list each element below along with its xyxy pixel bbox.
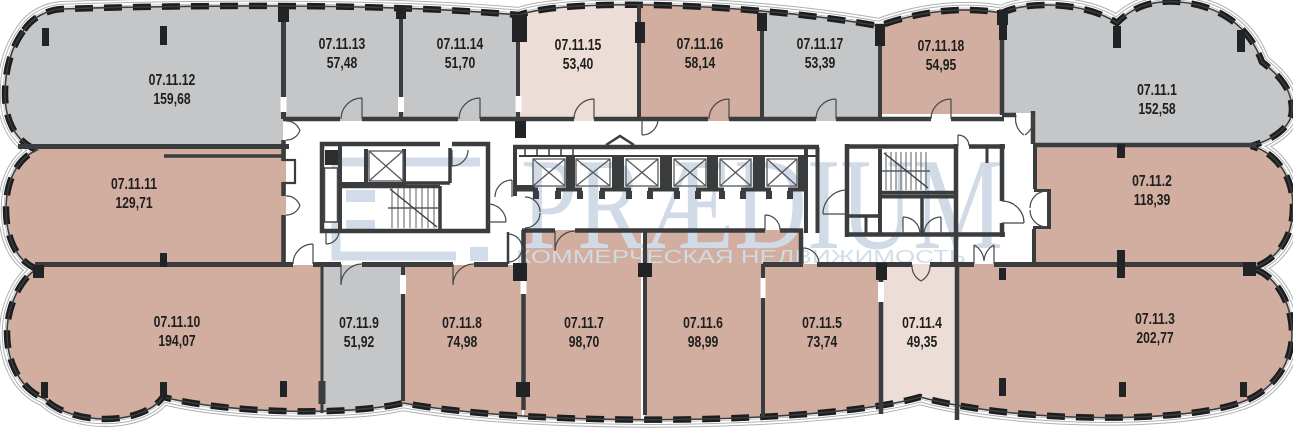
- svg-text:07.11.9: 07.11.9: [339, 314, 379, 332]
- svg-text:07.11.15: 07.11.15: [555, 36, 602, 54]
- svg-text:51,92: 51,92: [344, 333, 375, 351]
- svg-text:57,48: 57,48: [327, 54, 358, 72]
- svg-text:152,58: 152,58: [1138, 100, 1175, 118]
- svg-text:07.11.16: 07.11.16: [677, 35, 724, 53]
- svg-text:07.11.7: 07.11.7: [564, 314, 604, 332]
- svg-text:07.11.14: 07.11.14: [437, 35, 484, 53]
- svg-text:07.11.1: 07.11.1: [1137, 81, 1177, 99]
- svg-text:202,77: 202,77: [1136, 329, 1173, 347]
- svg-text:54,95: 54,95: [926, 56, 957, 74]
- svg-text:07.11.10: 07.11.10: [154, 313, 201, 331]
- svg-text:98,70: 98,70: [569, 333, 600, 351]
- svg-text:159,68: 159,68: [153, 90, 190, 108]
- svg-text:51,70: 51,70: [445, 54, 476, 72]
- svg-text:129,71: 129,71: [115, 194, 152, 212]
- svg-text:07.11.2: 07.11.2: [1132, 172, 1172, 190]
- svg-text:07.11.18: 07.11.18: [918, 37, 965, 55]
- svg-text:118,39: 118,39: [1134, 191, 1171, 209]
- svg-text:07.11.17: 07.11.17: [797, 35, 844, 53]
- svg-text:07.11.8: 07.11.8: [442, 314, 482, 332]
- svg-text:07.11.11: 07.11.11: [111, 175, 157, 193]
- svg-text:53,39: 53,39: [805, 54, 836, 72]
- svg-text:194,07: 194,07: [158, 332, 195, 350]
- svg-text:98,99: 98,99: [688, 333, 719, 351]
- svg-text:74,98: 74,98: [447, 333, 478, 351]
- svg-text:07.11.5: 07.11.5: [802, 314, 842, 332]
- svg-text:53,40: 53,40: [563, 55, 594, 73]
- svg-text:49,35: 49,35: [907, 333, 938, 351]
- svg-text:07.11.13: 07.11.13: [319, 35, 366, 53]
- svg-text:73,74: 73,74: [807, 333, 838, 351]
- svg-text:07.11.3: 07.11.3: [1135, 310, 1175, 328]
- svg-text:58,14: 58,14: [685, 54, 716, 72]
- svg-text:07.11.4: 07.11.4: [902, 314, 942, 332]
- svg-text:07.11.12: 07.11.12: [149, 71, 196, 89]
- svg-text:07.11.6: 07.11.6: [683, 314, 723, 332]
